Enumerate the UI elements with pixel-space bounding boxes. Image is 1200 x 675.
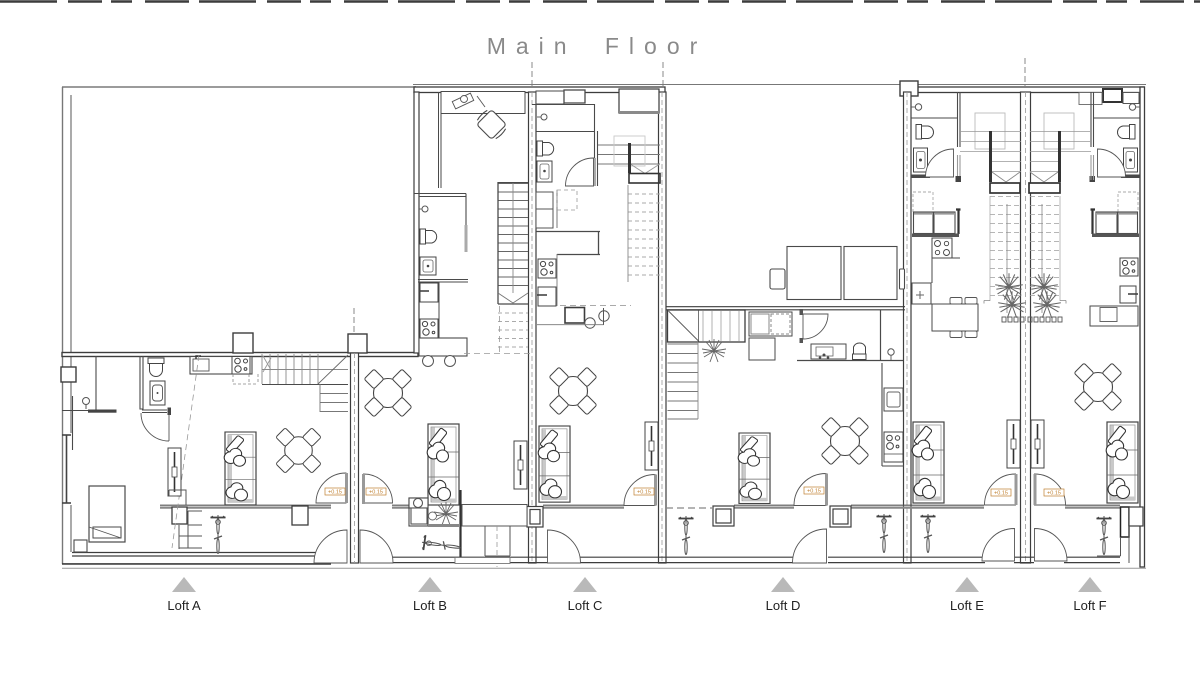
svg-text:Loft C: Loft C <box>568 598 603 613</box>
svg-text:Loft F: Loft F <box>1073 598 1106 613</box>
svg-text:Main Floor: Main Floor <box>487 33 708 59</box>
svg-text:Loft B: Loft B <box>413 598 447 613</box>
svg-text:Loft E: Loft E <box>950 598 984 613</box>
svg-text:Loft D: Loft D <box>766 598 801 613</box>
svg-text:Loft A: Loft A <box>167 598 201 613</box>
